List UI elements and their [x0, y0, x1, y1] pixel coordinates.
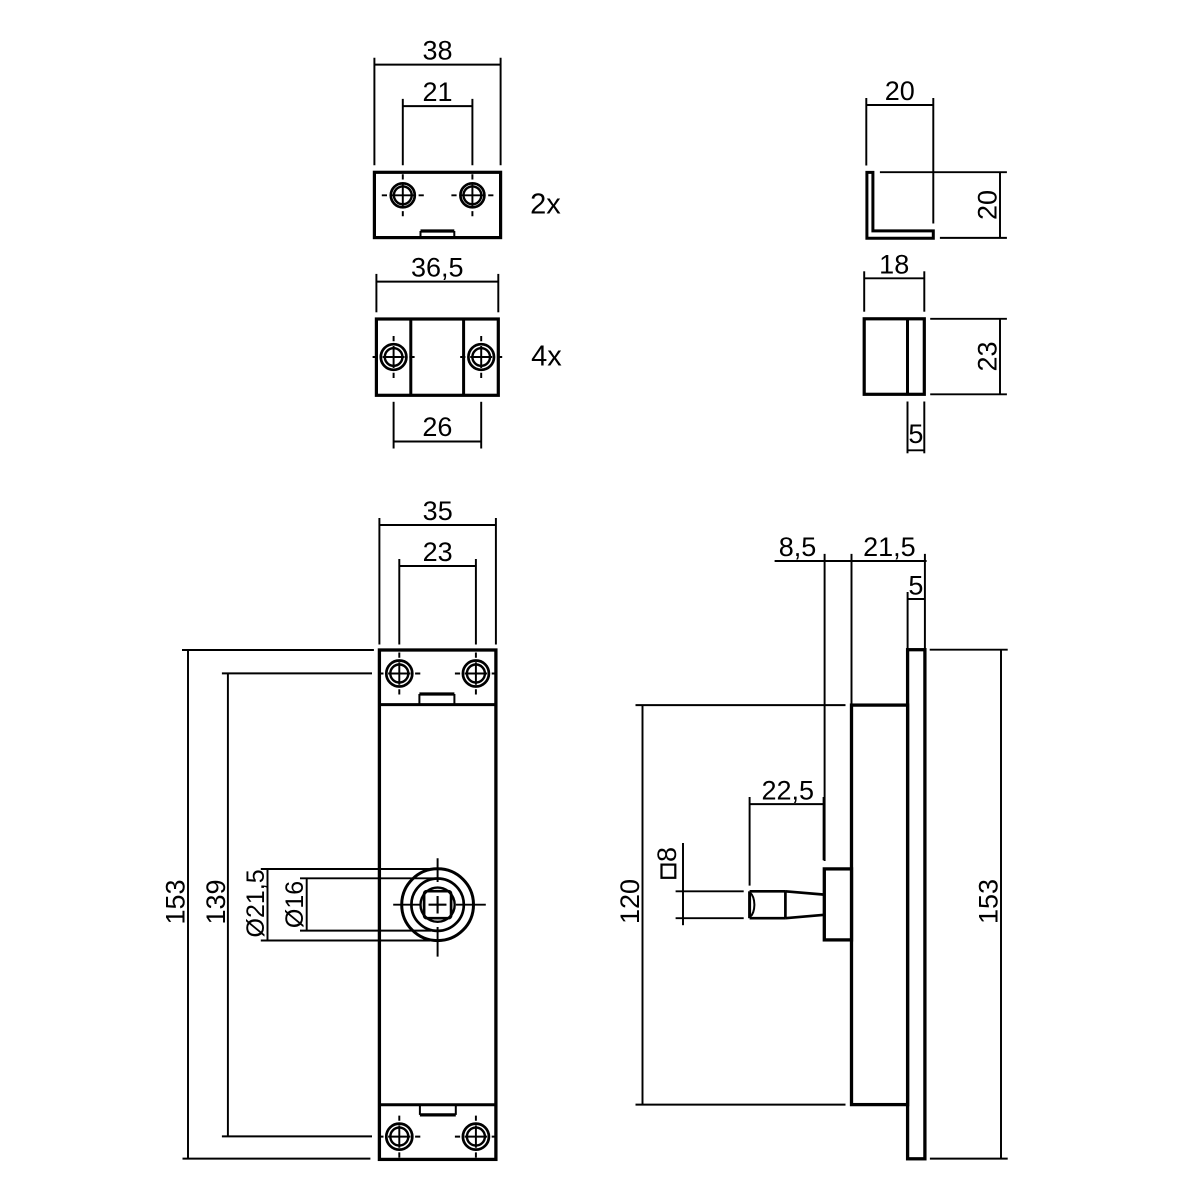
svg-text:120: 120	[615, 879, 645, 924]
svg-text:8: 8	[652, 847, 682, 862]
svg-text:20: 20	[973, 190, 1003, 220]
svg-text:Ø21,5: Ø21,5	[242, 869, 270, 937]
svg-text:23: 23	[423, 537, 453, 567]
svg-text:20: 20	[885, 76, 915, 106]
svg-text:8,5: 8,5	[779, 532, 817, 562]
svg-text:153: 153	[974, 879, 1004, 924]
svg-text:21: 21	[422, 77, 452, 107]
svg-text:22,5: 22,5	[762, 776, 815, 806]
svg-text:5: 5	[908, 570, 923, 600]
svg-text:5: 5	[908, 419, 923, 449]
svg-text:38: 38	[422, 36, 452, 66]
svg-text:139: 139	[201, 879, 231, 924]
svg-text:Ø16: Ø16	[281, 881, 309, 928]
svg-text:23: 23	[973, 341, 1003, 371]
svg-text:36,5: 36,5	[411, 252, 464, 282]
svg-text:2x: 2x	[530, 189, 561, 221]
svg-text:18: 18	[879, 249, 909, 279]
svg-text:21,5: 21,5	[863, 532, 916, 562]
svg-text:35: 35	[423, 496, 453, 526]
svg-text:153: 153	[160, 879, 190, 924]
svg-text:4x: 4x	[531, 341, 562, 373]
svg-text:26: 26	[422, 412, 452, 442]
